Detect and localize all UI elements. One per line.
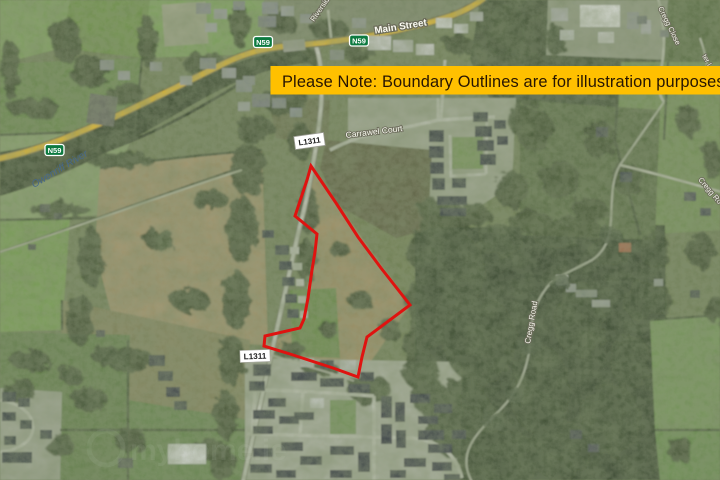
svg-text:N59: N59 (256, 38, 270, 47)
svg-text:N59: N59 (352, 36, 366, 45)
svg-text:N59: N59 (48, 146, 62, 155)
svg-text:L1311: L1311 (243, 352, 267, 362)
svg-text:Please Note: Boundary Outlines: Please Note: Boundary Outlines are for i… (282, 73, 720, 91)
svg-text:myhome.ie: myhome.ie (130, 434, 287, 467)
